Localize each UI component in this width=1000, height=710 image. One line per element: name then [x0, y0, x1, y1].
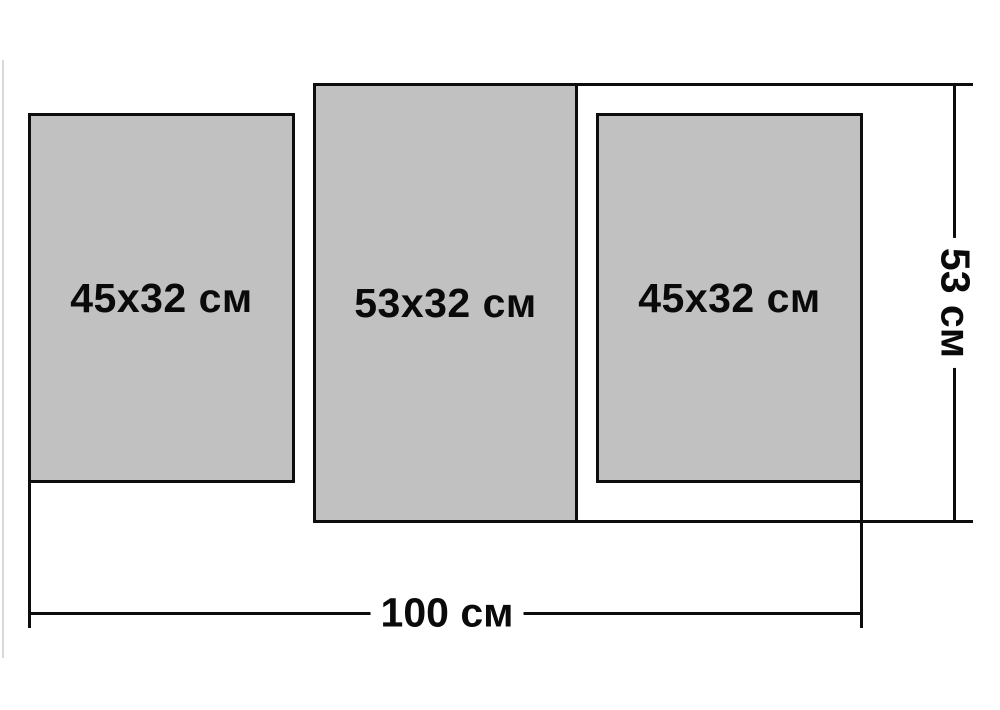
- height-extension-line-top: [575, 83, 973, 86]
- height-extension-line-bottom: [575, 520, 973, 523]
- panel-middle-size-label: 53x32 см: [354, 280, 537, 327]
- width-extension-line-right: [860, 483, 863, 628]
- panel-right: 45x32 см: [596, 113, 863, 483]
- width-extension-line-left: [28, 483, 31, 628]
- panel-left: 45x32 см: [28, 113, 295, 483]
- total-width-label: 100 см: [371, 590, 524, 635]
- panel-right-size-label: 45x32 см: [638, 275, 821, 322]
- total-height-label: 53 см: [932, 238, 977, 368]
- triptych-size-diagram: 45x32 см 53x32 см 45x32 см 53 см 100 см: [0, 0, 1000, 710]
- panel-left-size-label: 45x32 см: [70, 275, 253, 322]
- left-edge-artifact-line: [2, 60, 4, 658]
- panel-middle: 53x32 см: [313, 83, 578, 523]
